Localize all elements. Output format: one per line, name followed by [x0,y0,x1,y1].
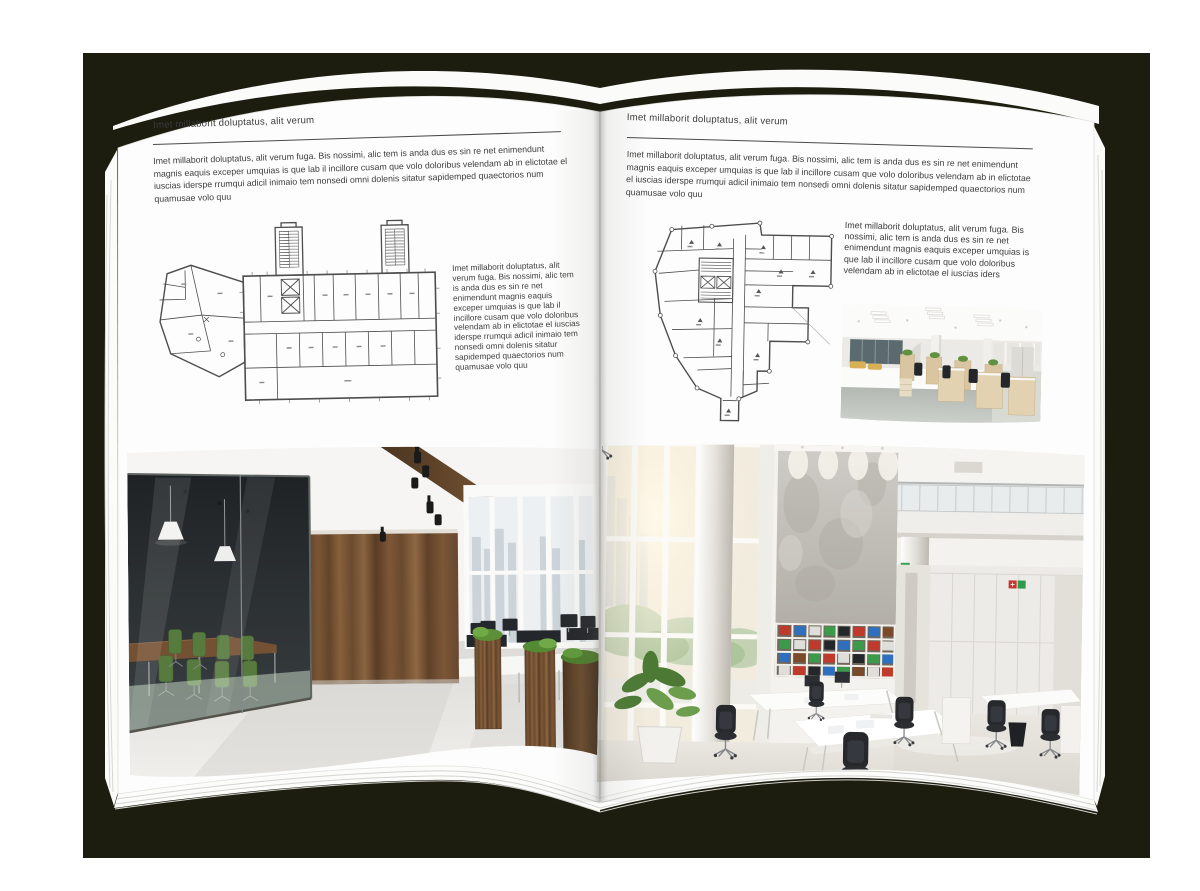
office-photo-left [127,444,600,782]
office-photo-right [596,440,1084,800]
left-page-side-text: Imet millaborit doluptatus, alit verum f… [452,260,582,373]
brochure-mockup-scene: Imet millaborit doluptatus, alit verum I… [0,0,1200,891]
safety-sign [1018,581,1026,589]
right-page-side-text: Imet millaborit doluptatus, alit verum f… [843,220,1040,281]
wood-feature-wall [306,533,459,684]
floor-plan-left-walls [158,220,442,406]
floor-plan-right-symbols [686,240,816,414]
office-photo-small [840,303,1043,426]
glass-meeting-room [127,472,311,732]
column [693,442,734,751]
concrete-wall [776,443,899,625]
mezzanine-balcony [897,445,1085,541]
floor-plan-left [156,218,452,416]
binder-shelves [775,623,896,679]
floor-plan-right-walls [650,219,833,422]
floor-plan-right [638,217,842,430]
